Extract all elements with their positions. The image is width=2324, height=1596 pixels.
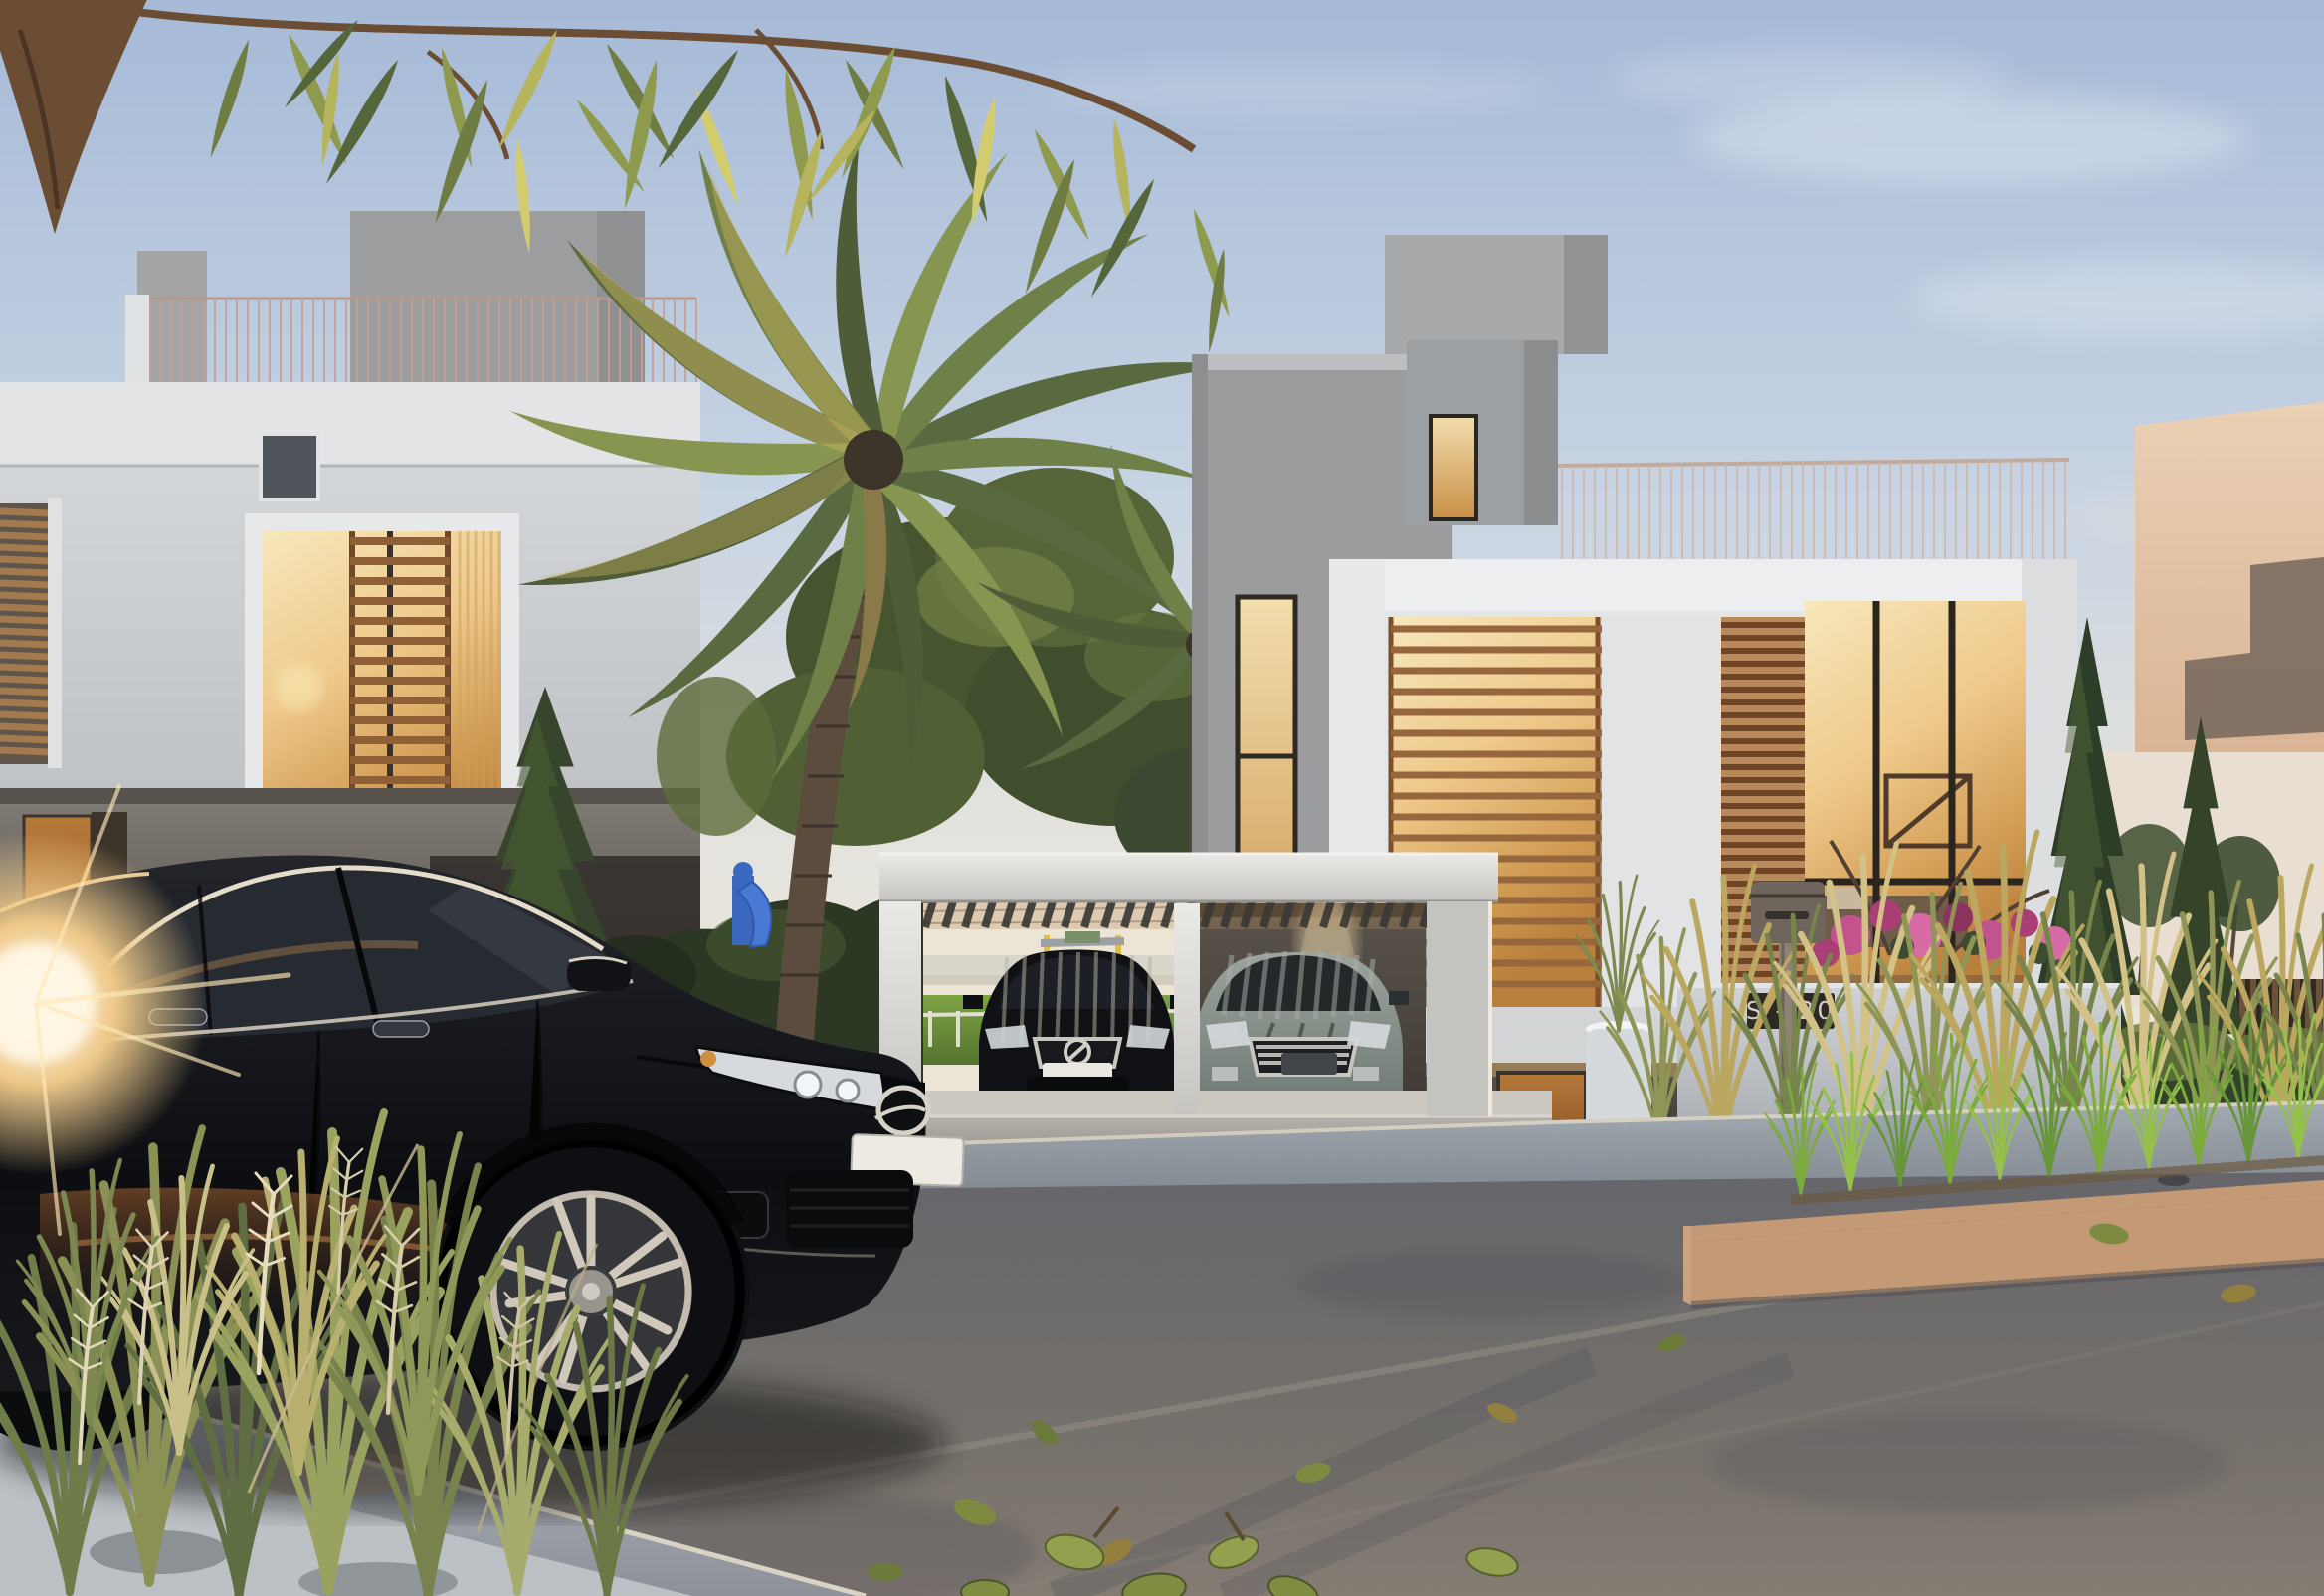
left-louver-window <box>0 498 62 768</box>
carport-post-right <box>1427 901 1492 1116</box>
small-upper-window <box>261 434 318 499</box>
door-handle-front <box>373 1021 429 1037</box>
top-slot-window <box>1431 416 1476 519</box>
license-plate-carport-right <box>1281 1053 1337 1075</box>
scene-stage: S - 20 <box>0 0 2324 1596</box>
carport-beam <box>879 854 1498 901</box>
carport <box>879 854 1552 1162</box>
scene-canvas: S - 20 <box>0 0 2324 1596</box>
carport-post-mid <box>1174 903 1200 1114</box>
